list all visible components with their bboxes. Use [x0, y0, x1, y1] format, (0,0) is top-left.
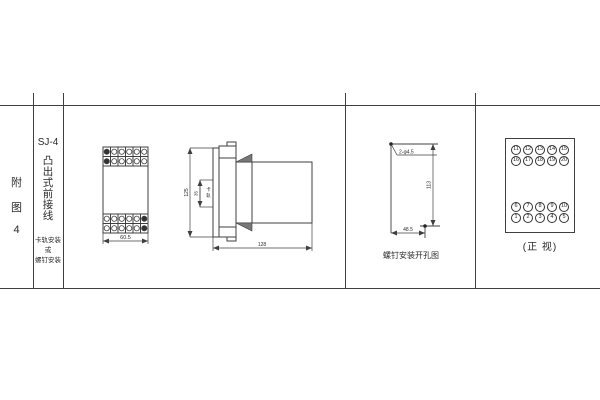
- terminal-group-top: 11 12 13 14 15 16 17 18 19 20: [505, 145, 575, 166]
- table-divider-3: [345, 93, 346, 288]
- figure-char: 图: [11, 199, 22, 215]
- terminal-circle: 13: [535, 145, 545, 155]
- figure-canvas: 附 图 4 SJ-4 凸 出 式 前 接 线 卡轨安装 或 螺钉安装: [0, 0, 600, 400]
- terminal-circle: 5: [559, 213, 569, 223]
- front-view-body: [103, 147, 148, 233]
- type-char: 线: [43, 211, 54, 222]
- terminal-circle: 16: [511, 156, 521, 166]
- bottom-hole-mark: [423, 224, 427, 228]
- terminal-circle: 4: [547, 213, 557, 223]
- terminal-circle: 12: [523, 145, 533, 155]
- terminal-row: 1 2 3 4 5: [511, 213, 569, 223]
- terminal-circle: 20: [559, 156, 569, 166]
- terminal-circle: 8: [535, 202, 545, 212]
- drill-horizontal-dimension: 48.5: [403, 227, 413, 233]
- rail-width-dimension: 35: [194, 191, 199, 197]
- model-label: SJ-4: [33, 137, 63, 148]
- front-width-dimension: 60.5: [120, 235, 131, 241]
- terminal-group-bottom: 6 7 8 9 10 1 2 3 4 5: [505, 202, 575, 223]
- table-divider-2: [63, 93, 64, 288]
- figure-char: 4: [13, 224, 19, 236]
- terminal-circle: 17: [523, 156, 533, 166]
- terminal-circle: 11: [511, 145, 521, 155]
- figure-char: 附: [11, 174, 22, 190]
- front-view-drawing: 60.5: [95, 140, 165, 252]
- hole-callout-leader: [391, 144, 437, 155]
- terminal-circle: 2: [523, 213, 533, 223]
- side-view-clamp-wedges: [236, 154, 252, 231]
- figure-number-label: 附 图 4: [0, 174, 33, 236]
- terminal-row: 16 17 18 19 20: [511, 156, 569, 166]
- terminal-row: 6 7 8 9 10: [511, 202, 569, 212]
- drill-diagram: 2-φ4.5 113 48.5: [370, 138, 455, 246]
- terminal-view-caption: (正 视): [505, 238, 575, 253]
- terminal-circle: 14: [547, 145, 557, 155]
- terminal-circle: 18: [535, 156, 545, 166]
- drill-vertical-dimension: 113: [427, 181, 433, 189]
- drill-diagram-caption: 螺钉安装开孔图: [366, 250, 456, 261]
- side-height-dimension: 125: [184, 188, 190, 197]
- table-bottom-rule: [0, 288, 600, 289]
- rail-label-char: 轨: [206, 192, 211, 199]
- table-top-rule: [0, 105, 600, 106]
- hole-callout-label: 2-φ4.5: [399, 150, 414, 156]
- terminal-circle: 19: [547, 156, 557, 166]
- terminal-circle: 1: [511, 213, 521, 223]
- terminal-circle: 7: [523, 202, 533, 212]
- drill-layout-lines: [391, 143, 440, 238]
- terminal-circle: 9: [547, 202, 557, 212]
- side-view-body: [213, 142, 312, 241]
- mounting-note-line: 或: [45, 246, 52, 256]
- rail-label-char: 卡: [206, 186, 211, 193]
- side-depth-dimension: 128: [258, 242, 267, 248]
- terminal-circle: 3: [535, 213, 545, 223]
- mounting-note-line: 卡轨安装: [35, 236, 61, 246]
- terminal-circle: 6: [511, 202, 521, 212]
- type-label: 凸 出 式 前 接 线: [33, 156, 63, 222]
- mounting-note-line: 螺钉安装: [35, 256, 61, 266]
- mounting-note: 卡轨安装 或 螺钉安装: [33, 236, 63, 266]
- side-view-drawing: 35 卡 轨 125 128: [180, 138, 325, 256]
- terminal-circle: 10: [559, 202, 569, 212]
- terminal-circle: 15: [559, 145, 569, 155]
- terminal-row: 11 12 13 14 15: [511, 145, 569, 155]
- table-divider-4: [475, 93, 476, 288]
